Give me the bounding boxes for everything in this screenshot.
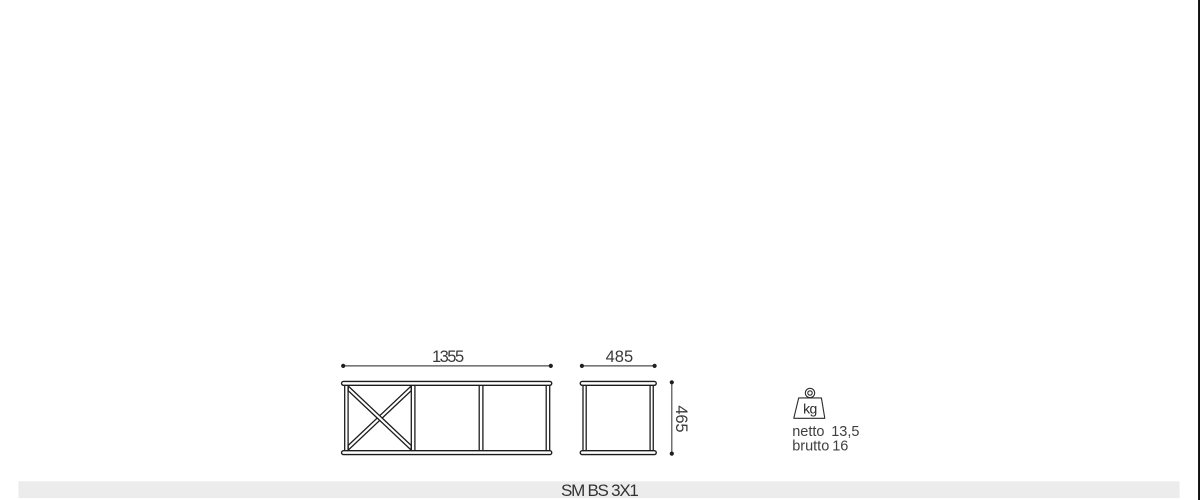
svg-text:13,5: 13,5 <box>831 424 859 440</box>
svg-text:1355: 1355 <box>432 348 464 366</box>
svg-text:485: 485 <box>606 348 634 366</box>
svg-text:SM BS 3X1: SM BS 3X1 <box>561 481 638 500</box>
svg-text:netto: netto <box>792 424 824 440</box>
svg-text:16: 16 <box>832 439 848 455</box>
svg-text:465: 465 <box>672 405 690 432</box>
svg-text:brutto: brutto <box>792 439 829 455</box>
svg-text:kg: kg <box>803 400 817 416</box>
